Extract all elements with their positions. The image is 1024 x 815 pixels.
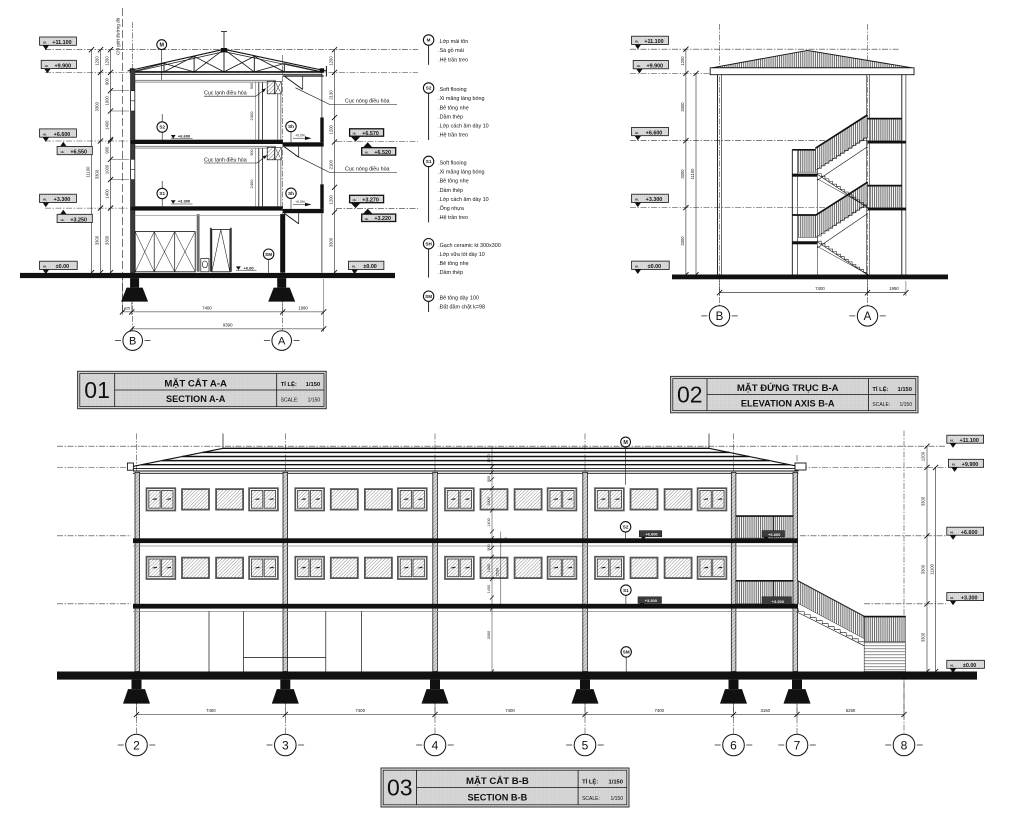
svg-text:3300: 3300 <box>94 169 99 179</box>
svg-text:SM: SM <box>425 294 432 299</box>
svg-text:1200: 1200 <box>104 56 109 66</box>
svg-text:900: 900 <box>250 83 254 89</box>
svg-text:±0.00: ±0.00 <box>363 264 376 270</box>
svg-text:1/150: 1/150 <box>608 780 623 786</box>
svg-text:3300: 3300 <box>680 102 685 112</box>
svg-text:Cục lạnh điều hòa: Cục lạnh điều hòa <box>204 91 247 97</box>
svg-text:7400: 7400 <box>815 286 825 291</box>
svg-text:+6.600: +6.600 <box>178 133 191 138</box>
svg-text:SCALE:: SCALE: <box>872 402 890 408</box>
svg-text:2: 2 <box>133 738 140 752</box>
svg-text:5290: 5290 <box>846 708 856 713</box>
svg-text:1200: 1200 <box>328 124 333 134</box>
svg-text:+6.550: +6.550 <box>70 149 87 155</box>
svg-text:S1: S1 <box>426 159 432 164</box>
svg-text:1400: 1400 <box>487 585 491 593</box>
svg-text:B: B <box>129 336 136 348</box>
svg-text:1/150: 1/150 <box>899 402 912 408</box>
svg-text:MẶT CẮT B-B: MẶT CẮT B-B <box>466 776 529 787</box>
svg-text:2130: 2130 <box>328 90 333 100</box>
svg-text:1/150: 1/150 <box>897 387 912 393</box>
svg-text:5: 5 <box>582 738 589 752</box>
svg-text:1/150: 1/150 <box>610 796 623 802</box>
svg-text:SCALE:: SCALE: <box>281 398 299 404</box>
svg-text:.Đất đầm chặt k=98: .Đất đầm chặt k=98 <box>438 304 485 310</box>
svg-text:7400: 7400 <box>206 708 216 713</box>
svg-text:4: 4 <box>432 738 439 752</box>
svg-text:Sh: Sh <box>288 191 294 196</box>
svg-text:HL: HL <box>43 198 47 202</box>
svg-text:1400: 1400 <box>487 518 491 526</box>
svg-text:2400: 2400 <box>249 179 254 189</box>
svg-text:.Xi măng láng bóng: .Xi măng láng bóng <box>438 96 484 102</box>
svg-text:1200: 1200 <box>680 56 685 66</box>
svg-text:.Lớp cách âm dày 10: .Lớp cách âm dày 10 <box>438 197 489 203</box>
svg-text:3150: 3150 <box>761 708 771 713</box>
svg-text:9390: 9390 <box>223 322 233 327</box>
svg-text:900: 900 <box>487 544 491 550</box>
svg-text:+6.600: +6.600 <box>54 132 71 138</box>
svg-text:SH: SH <box>425 241 432 246</box>
svg-text:1200: 1200 <box>920 451 925 461</box>
svg-text:400: 400 <box>504 537 508 543</box>
svg-text:2400: 2400 <box>249 111 254 121</box>
svg-text:HL: HL <box>950 438 954 442</box>
svg-text:900: 900 <box>250 149 254 155</box>
svg-text:Sh: Sh <box>288 124 294 129</box>
svg-text:1200: 1200 <box>487 454 491 462</box>
svg-text:1400: 1400 <box>104 188 109 198</box>
svg-text:±0.00: ±0.00 <box>56 264 69 270</box>
svg-text:SCALE:: SCALE: <box>582 796 600 802</box>
svg-text:.Hệ trần treo: .Hệ trần treo <box>438 132 468 138</box>
svg-text:+6.600: +6.600 <box>768 532 781 537</box>
svg-text:.Bê tông nhẹ: .Bê tông nhẹ <box>438 261 469 267</box>
svg-text:.Xi măng láng bóng: .Xi măng láng bóng <box>438 170 484 176</box>
svg-text:3300: 3300 <box>328 237 333 247</box>
svg-text:.Gạch ceramic kt 300x300: .Gạch ceramic kt 300x300 <box>438 243 501 249</box>
svg-text:HL: HL <box>365 151 369 155</box>
svg-text:+3.300: +3.300 <box>645 598 658 603</box>
svg-text:Chỉ giới đường đỏ: Chỉ giới đường đỏ <box>115 17 121 55</box>
svg-text:.Hệ trần treo: .Hệ trần treo <box>438 57 468 63</box>
svg-text:HL: HL <box>635 131 639 135</box>
svg-text:M: M <box>623 440 628 446</box>
svg-text:1000: 1000 <box>487 497 491 505</box>
svg-text:HL: HL <box>635 198 639 202</box>
svg-text:+9.900: +9.900 <box>962 462 979 468</box>
svg-text:HL: HL <box>43 132 47 136</box>
svg-text:S1: S1 <box>623 588 629 593</box>
svg-text:6: 6 <box>730 738 737 752</box>
svg-text:3: 3 <box>282 738 289 752</box>
svg-text:.Ống nhựa: .Ống nhựa <box>438 205 464 212</box>
svg-text:Cục lạnh điều hòa: Cục lạnh điều hòa <box>204 157 247 163</box>
svg-text:900: 900 <box>104 77 109 85</box>
svg-text:.Soft flooing: .Soft flooing <box>438 87 466 93</box>
svg-text:A: A <box>864 311 872 323</box>
svg-text:.Dầm thép: .Dầm thép <box>438 270 463 276</box>
svg-text:+3.220: +3.220 <box>374 216 391 222</box>
svg-text:HL: HL <box>950 664 954 668</box>
svg-text:MẶT CẮT A-A: MẶT CẮT A-A <box>164 378 227 389</box>
svg-text:.Lớp cách âm dày 10: .Lớp cách âm dày 10 <box>438 123 489 129</box>
svg-text:.Lớp vữa lót dày 10: .Lớp vữa lót dày 10 <box>438 252 485 258</box>
svg-text:7400: 7400 <box>355 708 365 713</box>
svg-text:.Dầm thép: .Dầm thép <box>438 114 463 120</box>
svg-text:TỈ LỆ:: TỈ LỆ: <box>281 380 297 388</box>
svg-text:+0.00: +0.00 <box>243 266 254 271</box>
svg-text:3300: 3300 <box>487 631 491 639</box>
svg-text:.Bê tông nhẹ: .Bê tông nhẹ <box>438 179 469 185</box>
svg-text:.Bê tông dày 100: .Bê tông dày 100 <box>438 295 479 301</box>
svg-text:2100: 2100 <box>328 159 333 169</box>
svg-text:3300: 3300 <box>94 235 99 245</box>
svg-text:S2: S2 <box>623 525 629 530</box>
svg-text:+3.270: +3.270 <box>362 197 379 203</box>
svg-text:HL: HL <box>43 265 47 269</box>
svg-text:+11.100: +11.100 <box>960 438 979 444</box>
svg-text:3300: 3300 <box>920 496 925 506</box>
svg-text:1000: 1000 <box>487 564 491 572</box>
svg-text:1200: 1200 <box>328 56 333 66</box>
svg-text:+3.300: +3.300 <box>772 599 785 604</box>
svg-text:7: 7 <box>794 738 801 752</box>
svg-text:B: B <box>716 311 724 323</box>
svg-text:+0.0%: +0.0% <box>295 134 305 138</box>
svg-text:7400: 7400 <box>505 708 515 713</box>
svg-text:+6.520: +6.520 <box>374 150 391 156</box>
svg-text:M: M <box>159 43 164 49</box>
svg-text:ELEVATION AXIS B-A: ELEVATION AXIS B-A <box>741 398 835 408</box>
svg-text:Cục nóng điều hòa: Cục nóng điều hòa <box>345 99 390 105</box>
svg-text:3300: 3300 <box>680 169 685 179</box>
svg-text:+6.600: +6.600 <box>645 532 658 537</box>
svg-text:1000: 1000 <box>104 95 109 105</box>
svg-text:TỈ LỆ:: TỈ LỆ: <box>582 778 598 786</box>
svg-text:HL: HL <box>635 40 639 44</box>
svg-text:.Sà gồ mái: .Sà gồ mái <box>438 48 464 54</box>
svg-text:1200: 1200 <box>328 194 333 204</box>
svg-text:HL: HL <box>353 132 357 136</box>
svg-text:+3.300: +3.300 <box>646 197 663 203</box>
svg-text:02: 02 <box>677 382 703 408</box>
svg-text:+0.0%: +0.0% <box>295 200 305 204</box>
svg-text:S2: S2 <box>426 86 432 91</box>
svg-text:03: 03 <box>387 775 413 801</box>
svg-text:+3.300: +3.300 <box>54 197 71 203</box>
svg-text:HL: HL <box>45 64 49 68</box>
svg-text:TỈ LỆ:: TỈ LỆ: <box>872 385 888 393</box>
svg-text:±0.00: ±0.00 <box>963 663 976 669</box>
svg-text:A: A <box>278 336 286 348</box>
svg-text:SM: SM <box>623 650 630 655</box>
svg-text:900: 900 <box>104 146 109 154</box>
svg-text:2500: 2500 <box>496 568 500 576</box>
svg-text:+3.250: +3.250 <box>70 217 87 223</box>
svg-text:HL: HL <box>950 596 954 600</box>
svg-text:HL: HL <box>952 463 956 467</box>
svg-text:+3.300: +3.300 <box>961 595 978 601</box>
svg-text:+3.300: +3.300 <box>178 199 191 204</box>
svg-text:1000: 1000 <box>104 164 109 174</box>
svg-text:01: 01 <box>84 377 110 403</box>
svg-text:3300: 3300 <box>680 236 685 246</box>
svg-text:.Soft flooing: .Soft flooing <box>438 161 466 167</box>
svg-text:HL: HL <box>352 265 356 269</box>
svg-text:1/150: 1/150 <box>308 398 321 404</box>
svg-text:HL: HL <box>353 198 357 202</box>
svg-text:HL: HL <box>635 265 639 269</box>
svg-text:HL: HL <box>43 41 47 45</box>
svg-text:+6.600: +6.600 <box>646 130 663 136</box>
svg-text:HL: HL <box>61 218 65 222</box>
svg-text:+9.900: +9.900 <box>54 63 71 69</box>
svg-text:.Hệ trần treo: .Hệ trần treo <box>438 215 468 221</box>
svg-text:HL: HL <box>61 150 65 154</box>
svg-text:HL: HL <box>365 217 369 221</box>
svg-text:HL: HL <box>950 530 954 534</box>
svg-text:+9.900: +9.900 <box>646 64 663 70</box>
svg-text:+6.570: +6.570 <box>362 131 379 137</box>
svg-text:3300: 3300 <box>104 235 109 245</box>
svg-text:±0.00: ±0.00 <box>648 264 661 270</box>
svg-text:3300: 3300 <box>920 632 925 642</box>
svg-text:11100: 11100 <box>930 563 935 575</box>
svg-text:900: 900 <box>487 476 491 482</box>
svg-text:425: 425 <box>124 306 130 310</box>
svg-text:1990: 1990 <box>889 286 899 291</box>
svg-text:.Dầm thép: .Dầm thép <box>438 188 463 194</box>
svg-text:1990: 1990 <box>298 305 308 310</box>
svg-text:SECTION A-A: SECTION A-A <box>166 394 226 404</box>
svg-text:11100: 11100 <box>690 168 695 180</box>
svg-text:M: M <box>427 38 431 43</box>
svg-text:SECTION B-B: SECTION B-B <box>468 793 528 803</box>
svg-text:S1: S1 <box>159 191 165 196</box>
svg-text:7400: 7400 <box>202 305 212 310</box>
svg-text:+11.100: +11.100 <box>644 39 663 45</box>
svg-text:1/150: 1/150 <box>306 382 321 388</box>
svg-text:+6.600: +6.600 <box>961 530 978 536</box>
svg-text:3300: 3300 <box>920 564 925 574</box>
svg-text:.Bê tông nhẹ: .Bê tông nhẹ <box>438 105 469 111</box>
svg-text:1400: 1400 <box>104 120 109 130</box>
svg-text:Cục nóng điều hòa: Cục nóng điều hòa <box>345 167 390 173</box>
svg-text:SM: SM <box>265 252 272 257</box>
svg-text:HL: HL <box>637 64 641 68</box>
svg-text:3300: 3300 <box>94 101 99 111</box>
svg-text:1200: 1200 <box>94 56 99 66</box>
svg-text:7400: 7400 <box>655 708 665 713</box>
svg-text:S2: S2 <box>159 125 165 130</box>
svg-text:11100: 11100 <box>86 166 91 178</box>
svg-text:MẶT ĐỨNG TRỤC B-A: MẶT ĐỨNG TRỤC B-A <box>737 382 839 394</box>
svg-text:8: 8 <box>901 738 908 752</box>
svg-text:+11.100: +11.100 <box>52 40 71 46</box>
svg-text:.Lớp mái tôn: .Lớp mái tôn <box>438 39 468 45</box>
